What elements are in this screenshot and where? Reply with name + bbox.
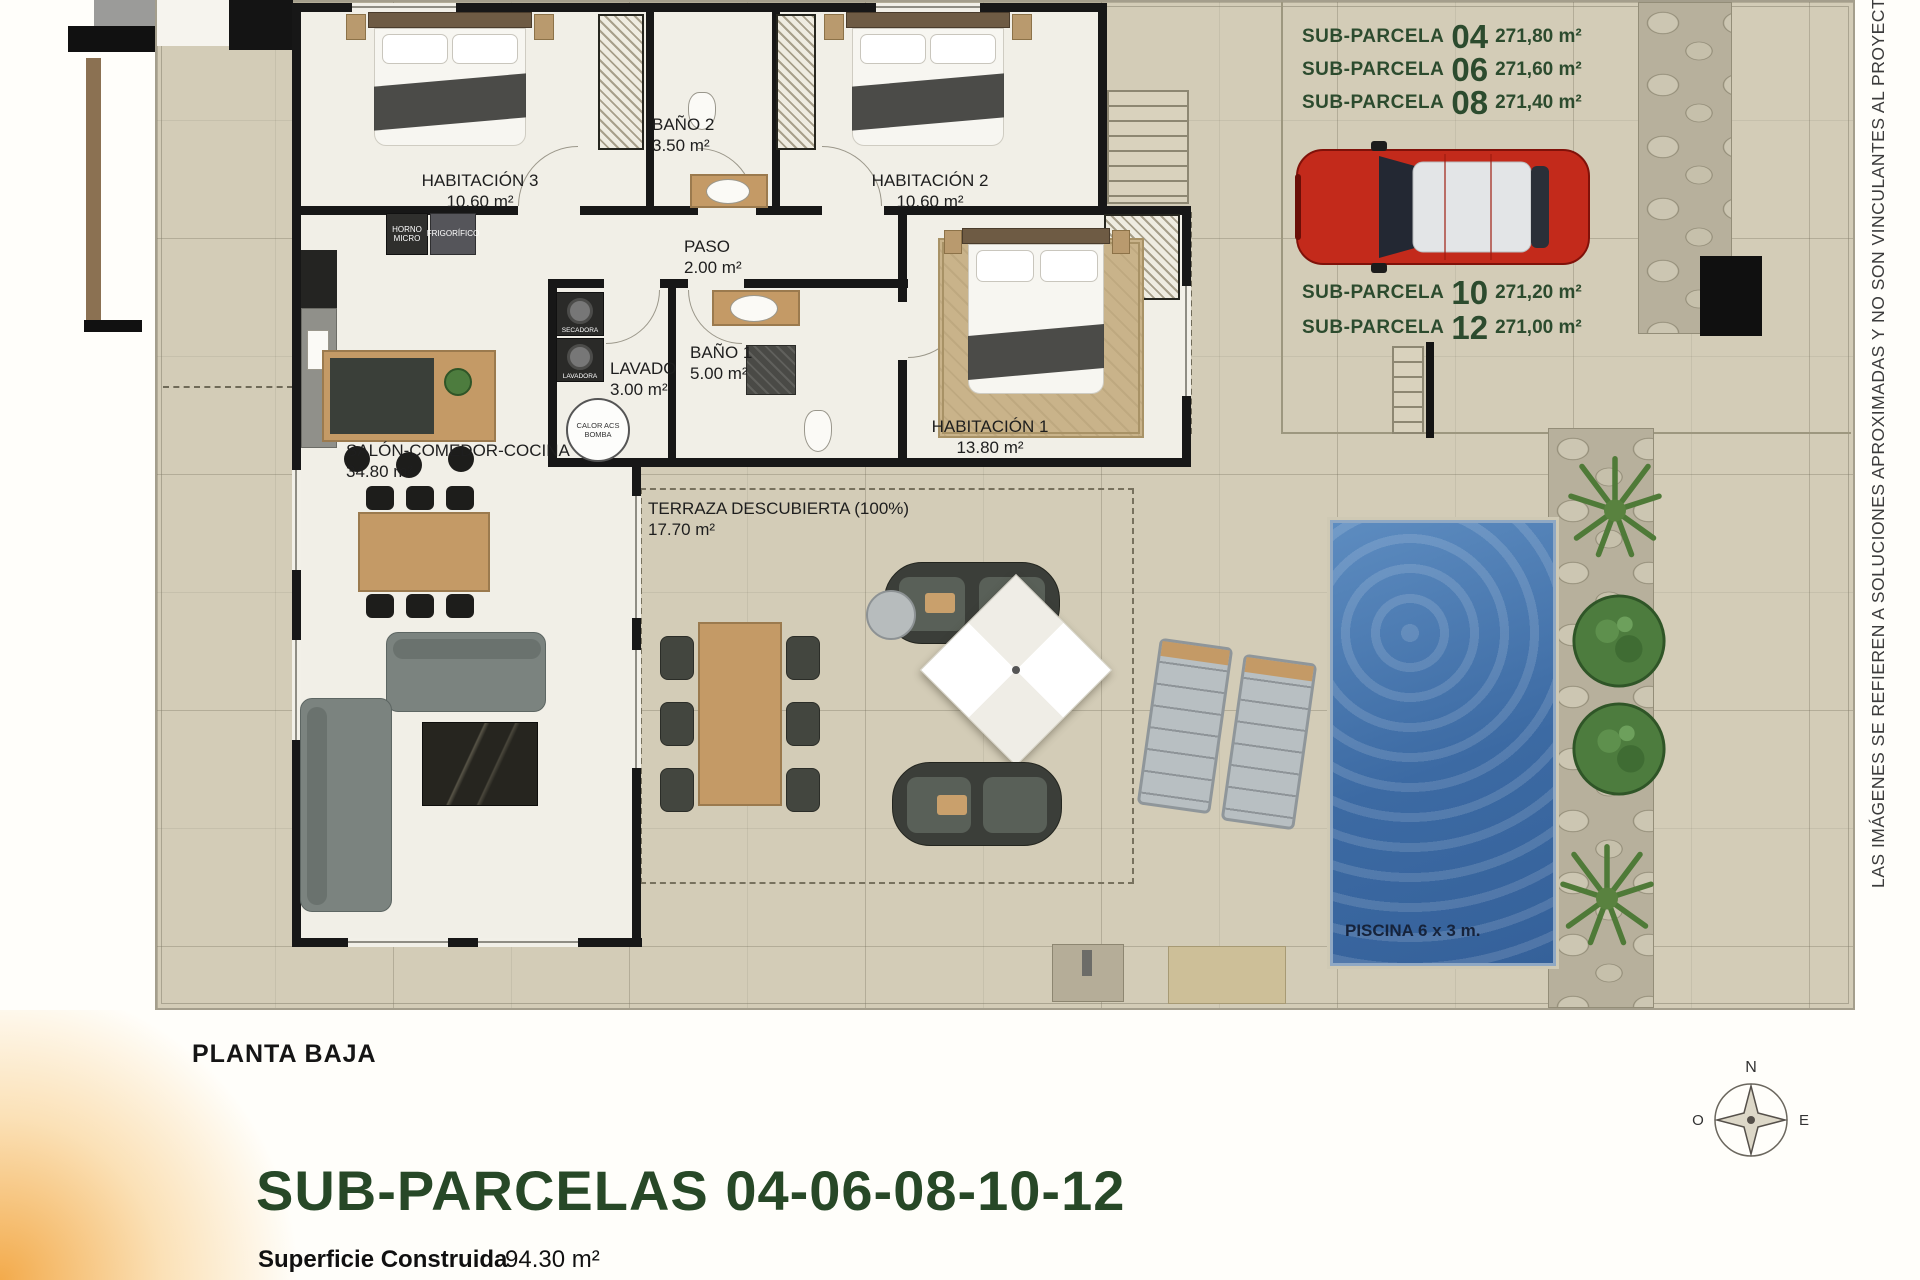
window-south-1 xyxy=(348,938,448,947)
side-table-round xyxy=(866,590,916,640)
exterior-white-corner xyxy=(157,0,229,46)
sub-parcela-row: SUB-PARCELA 12 271,00 m² xyxy=(1302,311,1582,345)
tree-icon xyxy=(1570,700,1668,798)
window-bed1-east xyxy=(1182,286,1191,396)
outdoor-chair xyxy=(786,768,820,812)
steps-side-wall xyxy=(1426,342,1434,438)
outdoor-chair xyxy=(786,636,820,680)
sub-parcela-label: SUB-PARCELA xyxy=(1302,92,1444,114)
outdoor-sofa-bottom xyxy=(892,762,1062,846)
fridge-label: FRIGORÍFICO xyxy=(427,229,479,238)
sofa-back xyxy=(307,707,327,905)
wardrobe-bed3 xyxy=(598,14,644,150)
room-label-bano2: BAÑO 2 3.50 m² xyxy=(652,114,714,157)
compass-north: N xyxy=(1745,1059,1757,1076)
nightstand xyxy=(944,230,962,254)
grass-plant-icon xyxy=(1552,838,1662,948)
sub-parcela-number: 08 xyxy=(1451,84,1488,122)
room-label-bano1: BAÑO 1 5.00 m² xyxy=(690,342,752,385)
island-top xyxy=(330,358,434,434)
sub-parcela-row: SUB-PARCELA 06 271,60 m² xyxy=(1302,53,1582,87)
sub-parcela-label: SUB-PARCELA xyxy=(1302,59,1444,81)
water-heater: CALOR ACS BOMBA xyxy=(566,398,630,462)
sink-bath2 xyxy=(706,179,750,204)
compass-west: O xyxy=(1692,1112,1704,1129)
room-label-habitacion3: HABITACIÓN 3 10.60 m² xyxy=(400,170,560,213)
machine-door-icon xyxy=(567,344,593,370)
door-gap-bed1 xyxy=(898,302,907,360)
sub-parcela-area: 271,40 m² xyxy=(1495,92,1582,114)
doormat xyxy=(1168,946,1286,1004)
nightstand xyxy=(824,14,844,40)
room-label-salon: SALÓN-COMEDOR-COCINA 34.80 m² xyxy=(346,440,570,483)
pillow xyxy=(930,34,996,64)
disclaimer-note: LAS IMÁGENES SE REFIEREN A SOLUCIONES AP… xyxy=(1868,4,1889,888)
tree-icon xyxy=(1570,592,1668,690)
oven-microwave: HORNO MICRO xyxy=(386,213,428,255)
kitchen-oven-column xyxy=(301,250,337,308)
coffee-table xyxy=(422,722,538,806)
built-area-value: 94.30 m² xyxy=(505,1246,600,1274)
window-bed3 xyxy=(352,3,456,12)
window-living-east xyxy=(632,650,641,768)
dining-chair xyxy=(366,486,394,510)
parasol-pole xyxy=(1012,666,1020,674)
sub-parcela-area: 271,80 m² xyxy=(1495,26,1582,48)
sofa-accent xyxy=(937,795,967,815)
sub-parcela-area: 271,20 m² xyxy=(1495,282,1582,304)
dining-chair xyxy=(406,594,434,618)
room-label-habitacion1: HABITACIÓN 1 13.80 m² xyxy=(900,416,1080,459)
pillow xyxy=(860,34,926,64)
nightstand xyxy=(534,14,554,40)
wall-block-top-right xyxy=(1700,256,1762,336)
oven-microwave-label: HORNO MICRO xyxy=(387,225,427,243)
room-label-terraza: TERRAZA DESCUBIERTA (100%) 17.70 m² xyxy=(648,498,909,541)
neighbour-wood-strip xyxy=(86,58,101,324)
sub-parcela-area: 271,60 m² xyxy=(1495,59,1582,81)
island-plant xyxy=(444,368,472,396)
nightstand xyxy=(346,14,366,40)
sofa-cushion xyxy=(983,777,1047,833)
compass-icon: N O E xyxy=(1686,1056,1816,1180)
washer-label: LAVADORA xyxy=(557,373,603,380)
sub-parcela-area: 271,00 m² xyxy=(1495,317,1582,339)
swimming-pool: PISCINA 6 x 3 m. xyxy=(1330,520,1556,966)
pillow xyxy=(976,250,1034,282)
outdoor-dining-table xyxy=(698,622,782,806)
shower-bath1 xyxy=(746,345,796,395)
sofa-vertical xyxy=(300,698,392,912)
dining-chair xyxy=(446,594,474,618)
toilet-bath1 xyxy=(804,410,832,452)
sub-parcela-number: 12 xyxy=(1451,309,1488,347)
car xyxy=(1292,140,1594,274)
dryer: SECADORA xyxy=(556,292,604,336)
door-gap-laundry xyxy=(604,279,660,288)
exterior-wall-block xyxy=(229,0,293,50)
nightstand xyxy=(1012,14,1032,40)
outdoor-chair xyxy=(660,636,694,680)
fridge: FRIGORÍFICO xyxy=(430,213,476,255)
compass-east: E xyxy=(1799,1112,1809,1129)
bed-habitacion1 xyxy=(962,228,1110,244)
sub-parcela-label: SUB-PARCELA xyxy=(1302,26,1444,48)
sub-parcela-row: SUB-PARCELA 08 271,40 m² xyxy=(1302,86,1582,120)
room-label-lavado: LAVADO 3.00 m² xyxy=(610,358,676,401)
neighbour-wall-black xyxy=(68,26,162,52)
outdoor-chair xyxy=(660,702,694,746)
neighbour-wall-black-2 xyxy=(84,320,142,332)
wardrobe-bed2 xyxy=(776,14,816,150)
room-label-paso: PASO 2.00 m² xyxy=(684,236,742,279)
window-south-2 xyxy=(478,938,578,947)
floor-plan-page: SECADORA LAVADORA CALOR ACS BOMBA HORNO … xyxy=(0,0,1920,1280)
washer: LAVADORA xyxy=(556,338,604,382)
sofa-horizontal xyxy=(386,632,546,712)
sub-parcela-number: 10 xyxy=(1451,274,1488,312)
machine-door-icon xyxy=(567,298,593,324)
setback-dashed-line xyxy=(163,386,293,388)
pillow xyxy=(1040,250,1098,282)
bed-habitacion2 xyxy=(846,12,1010,28)
pillow xyxy=(452,34,518,64)
parking-boundary-line xyxy=(1281,2,1283,434)
pool-side-steps xyxy=(1392,346,1424,434)
page-title: SUB-PARCELAS 04-06-08-10-12 xyxy=(256,1158,1125,1223)
dining-table xyxy=(358,512,490,592)
outdoor-chair xyxy=(660,768,694,812)
wall-south-east-wing xyxy=(548,458,1191,467)
outdoor-chair xyxy=(786,702,820,746)
sink-bath1 xyxy=(730,295,778,322)
room-label-habitacion2: HABITACIÓN 2 10.60 m² xyxy=(850,170,1010,213)
sofa-back xyxy=(393,639,541,659)
wall-bed3-bath2 xyxy=(646,3,654,215)
nightstand xyxy=(1112,230,1130,254)
sub-parcela-row: SUB-PARCELA 10 271,20 m² xyxy=(1302,276,1582,310)
sliding-door-terrace xyxy=(632,496,641,618)
dining-chair xyxy=(366,594,394,618)
sofa-accent xyxy=(925,593,955,613)
outdoor-shower-pole xyxy=(1082,950,1092,976)
pool-label: PISCINA 6 x 3 m. xyxy=(1345,921,1480,941)
water-heater-label: CALOR ACS BOMBA xyxy=(568,421,628,439)
dining-chair xyxy=(406,486,434,510)
bed-habitacion3 xyxy=(368,12,532,28)
sub-parcela-label: SUB-PARCELA xyxy=(1302,317,1444,339)
built-area-label: Superficie Construida xyxy=(258,1246,507,1274)
sub-parcela-row: SUB-PARCELA 04 271,80 m² xyxy=(1302,20,1582,54)
door-gap-bath1 xyxy=(688,279,744,288)
dining-chair xyxy=(446,486,474,510)
window-bed2 xyxy=(876,3,980,12)
floor-title: PLANTA BAJA xyxy=(192,1040,377,1069)
sub-parcela-label: SUB-PARCELA xyxy=(1302,282,1444,304)
wall-bed2-east xyxy=(1098,3,1107,215)
grass-plant-icon xyxy=(1560,450,1670,560)
wall-south-living xyxy=(292,938,642,947)
pillow xyxy=(382,34,448,64)
dryer-label: SECADORA xyxy=(557,327,603,334)
exterior-stairs xyxy=(1107,90,1189,204)
window-west-1 xyxy=(292,470,301,570)
